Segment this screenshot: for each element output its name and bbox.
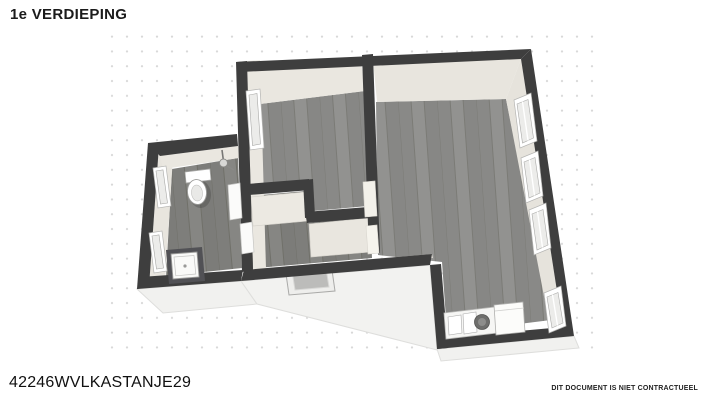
refrigerator-icon	[494, 302, 525, 335]
floorplan-page: 1e VERDIEPING	[0, 0, 702, 402]
doorway-divider-a	[363, 181, 377, 217]
door-hall	[240, 222, 254, 254]
floorplan-render	[0, 0, 702, 402]
disclaimer: DIT DOCUMENT IS NIET CONTRACTUEEL	[551, 385, 698, 392]
doorway-divider-b	[366, 225, 379, 254]
shower-tray-icon	[166, 247, 205, 284]
door-bathroom	[228, 183, 242, 220]
reference-code: 42246WVLKASTANJE29	[9, 374, 191, 392]
